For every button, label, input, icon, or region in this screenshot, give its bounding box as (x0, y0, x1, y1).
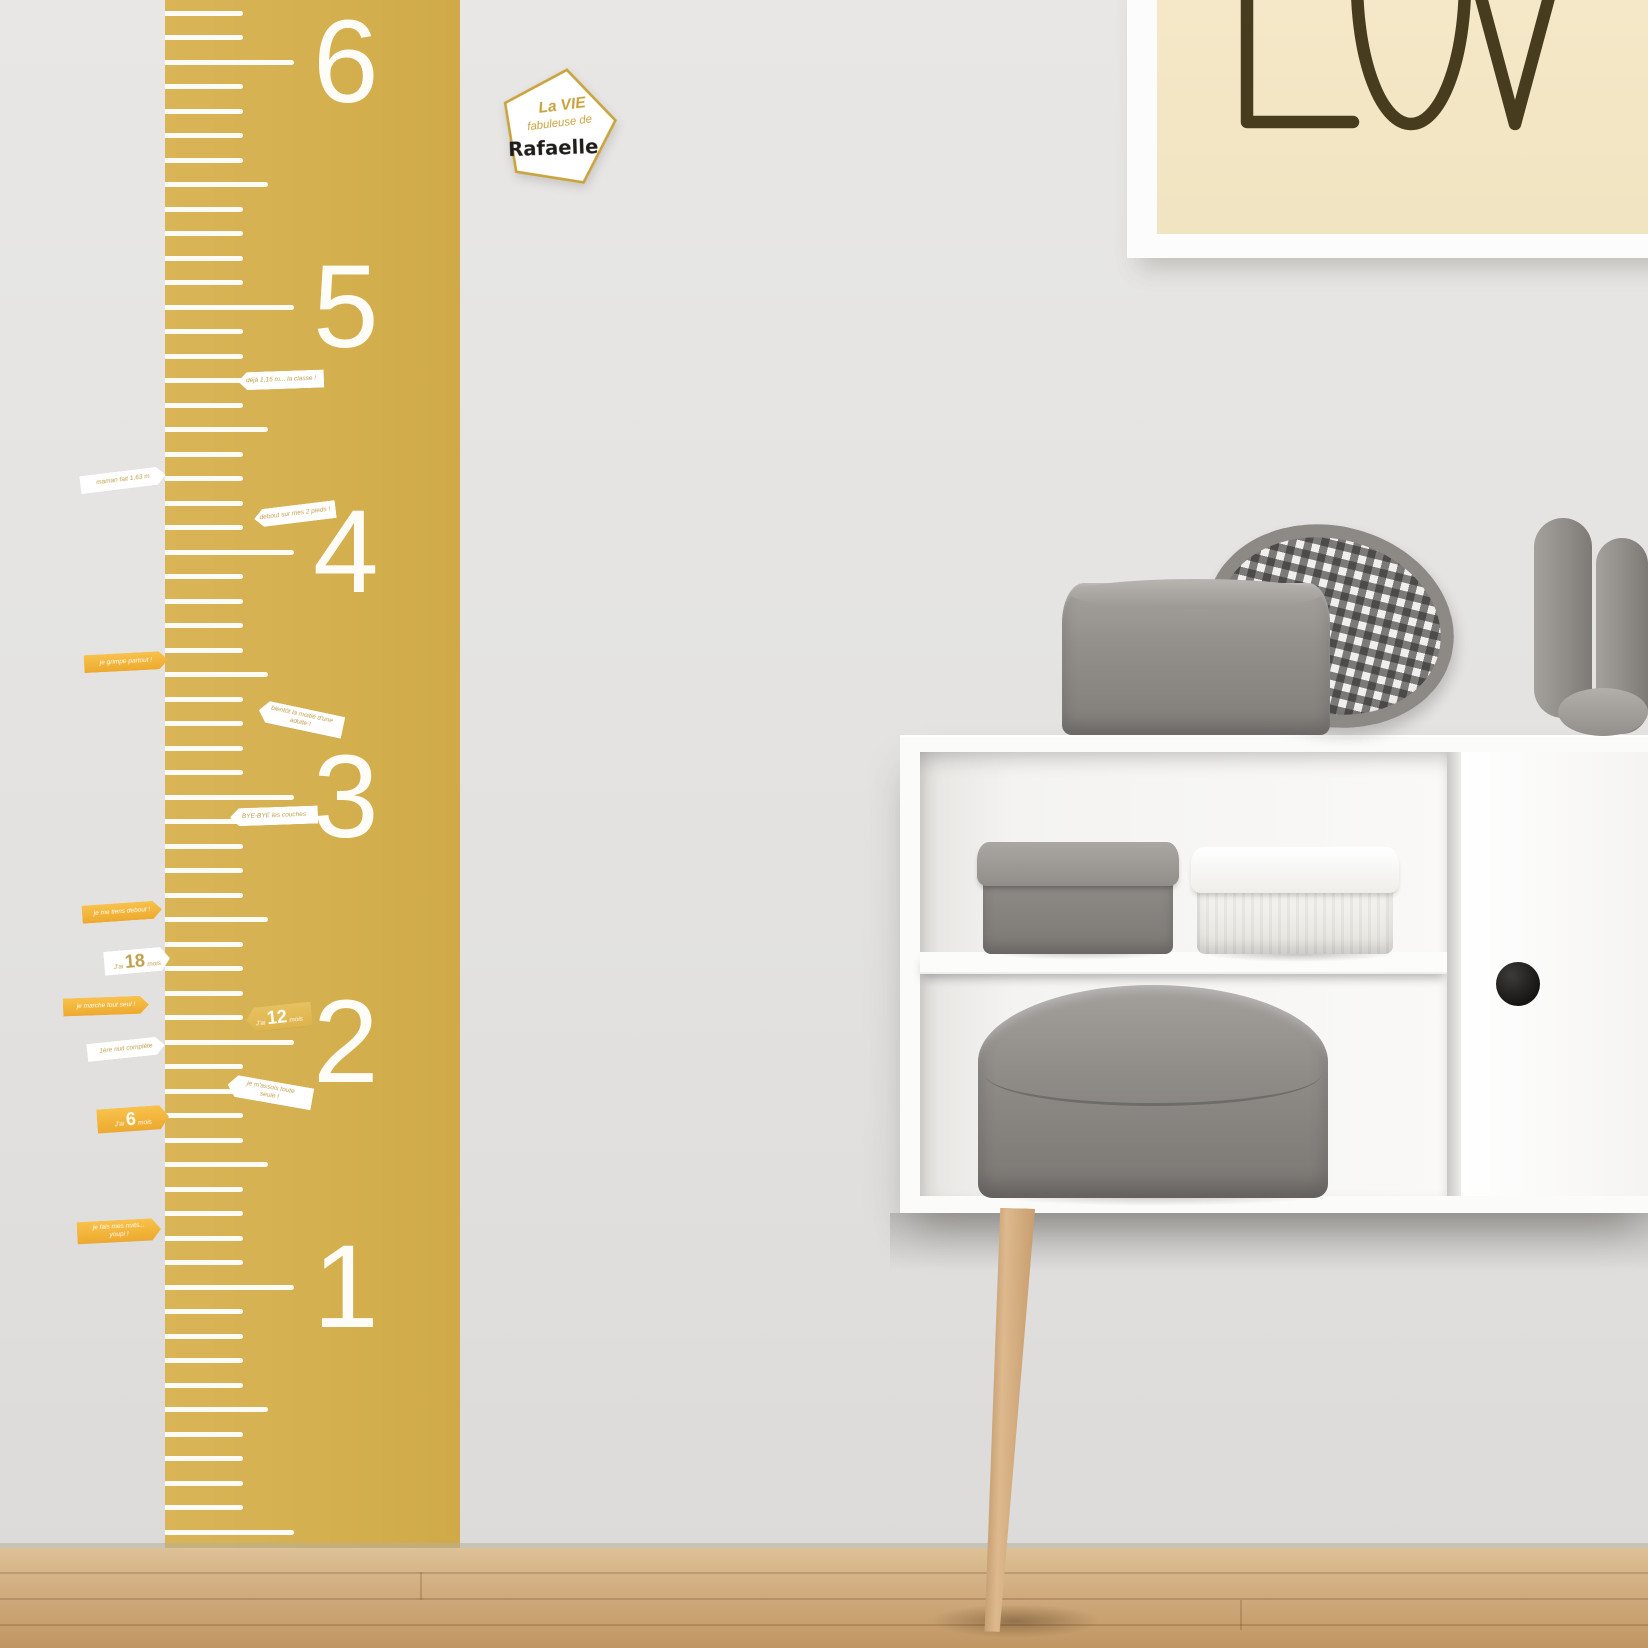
cabinet-door (1461, 752, 1648, 1196)
flag-text: BYE-BYE les couches (242, 811, 307, 821)
flag-text: mois (147, 960, 161, 969)
flag-text: je me tiens debout ! (93, 906, 150, 918)
flag-text: 12 (266, 1007, 288, 1027)
milestone-flag: je fais mes nuits...youpi ! (76, 1218, 161, 1245)
milestone-flag: je m'assois touteseule ! (226, 1074, 315, 1111)
grey-round-box-top (1062, 583, 1330, 735)
grey-oval-box-bottom (978, 985, 1328, 1198)
room-photo: 654321 maman fait 1,63 mdebout sur mes 2… (0, 0, 1648, 1648)
milestone-flag: je grimpe partout ! (84, 651, 169, 673)
plush-leg (1534, 518, 1592, 718)
milestone-flag: J'ai6mois (96, 1105, 170, 1134)
grey-plush-toy (1524, 512, 1648, 738)
milestone-flag: maman fait 1,63 m (79, 466, 167, 494)
milestone-flag: bientôt la moitié d'uneadulte ! (257, 699, 346, 739)
milestone-flag: BYE-BYE les couches (230, 805, 319, 826)
flag-text: je marche tout seul ! (77, 1001, 136, 1011)
flag-text: debout sur mes 2 pieds ! (259, 506, 331, 523)
flag-text: J'ai (256, 1019, 266, 1028)
sticker-child-name: Rafaelle (508, 135, 599, 161)
leg-floor-shadow (930, 1604, 1100, 1638)
milestone-flag: J'ai18mois (103, 946, 171, 976)
white-round-box-shelf (1197, 847, 1393, 954)
flag-text: maman fait 1,63 m (96, 473, 150, 488)
flag-text: je grimpe partout ! (100, 657, 153, 668)
flag-text: J'ai (114, 1121, 124, 1130)
grey-round-box-shelf (983, 842, 1173, 954)
flag-text: 18 (124, 951, 146, 971)
milestone-flag: J'ai12mois (245, 1002, 313, 1033)
flag-text: youpi ! (109, 1231, 129, 1240)
milestone-flag: déjà 1,15 m... la classe ! (238, 370, 325, 391)
flag-text: 1ère nuit complète (99, 1042, 153, 1056)
flag-text: mois (289, 1016, 304, 1026)
flag-text: J'ai (114, 963, 124, 972)
milestone-flag: je me tiens debout ! (81, 900, 162, 924)
flag-text: 6 (125, 1110, 136, 1129)
milestone-flag: debout sur mes 2 pieds ! (253, 500, 337, 528)
milestone-flag: 1ère nuit complète (86, 1036, 165, 1062)
flag-text: mois (138, 1119, 152, 1128)
flag-text: déjà 1,15 m... la classe ! (246, 375, 316, 386)
milestone-flag: je marche tout seul ! (63, 996, 150, 1017)
cabinet-door-seam (1447, 752, 1461, 1196)
door-knob (1496, 962, 1540, 1006)
pentagon-name-sticker: La VIE fabuleuse de Rafaelle (487, 55, 629, 197)
plush-foot (1558, 688, 1648, 736)
